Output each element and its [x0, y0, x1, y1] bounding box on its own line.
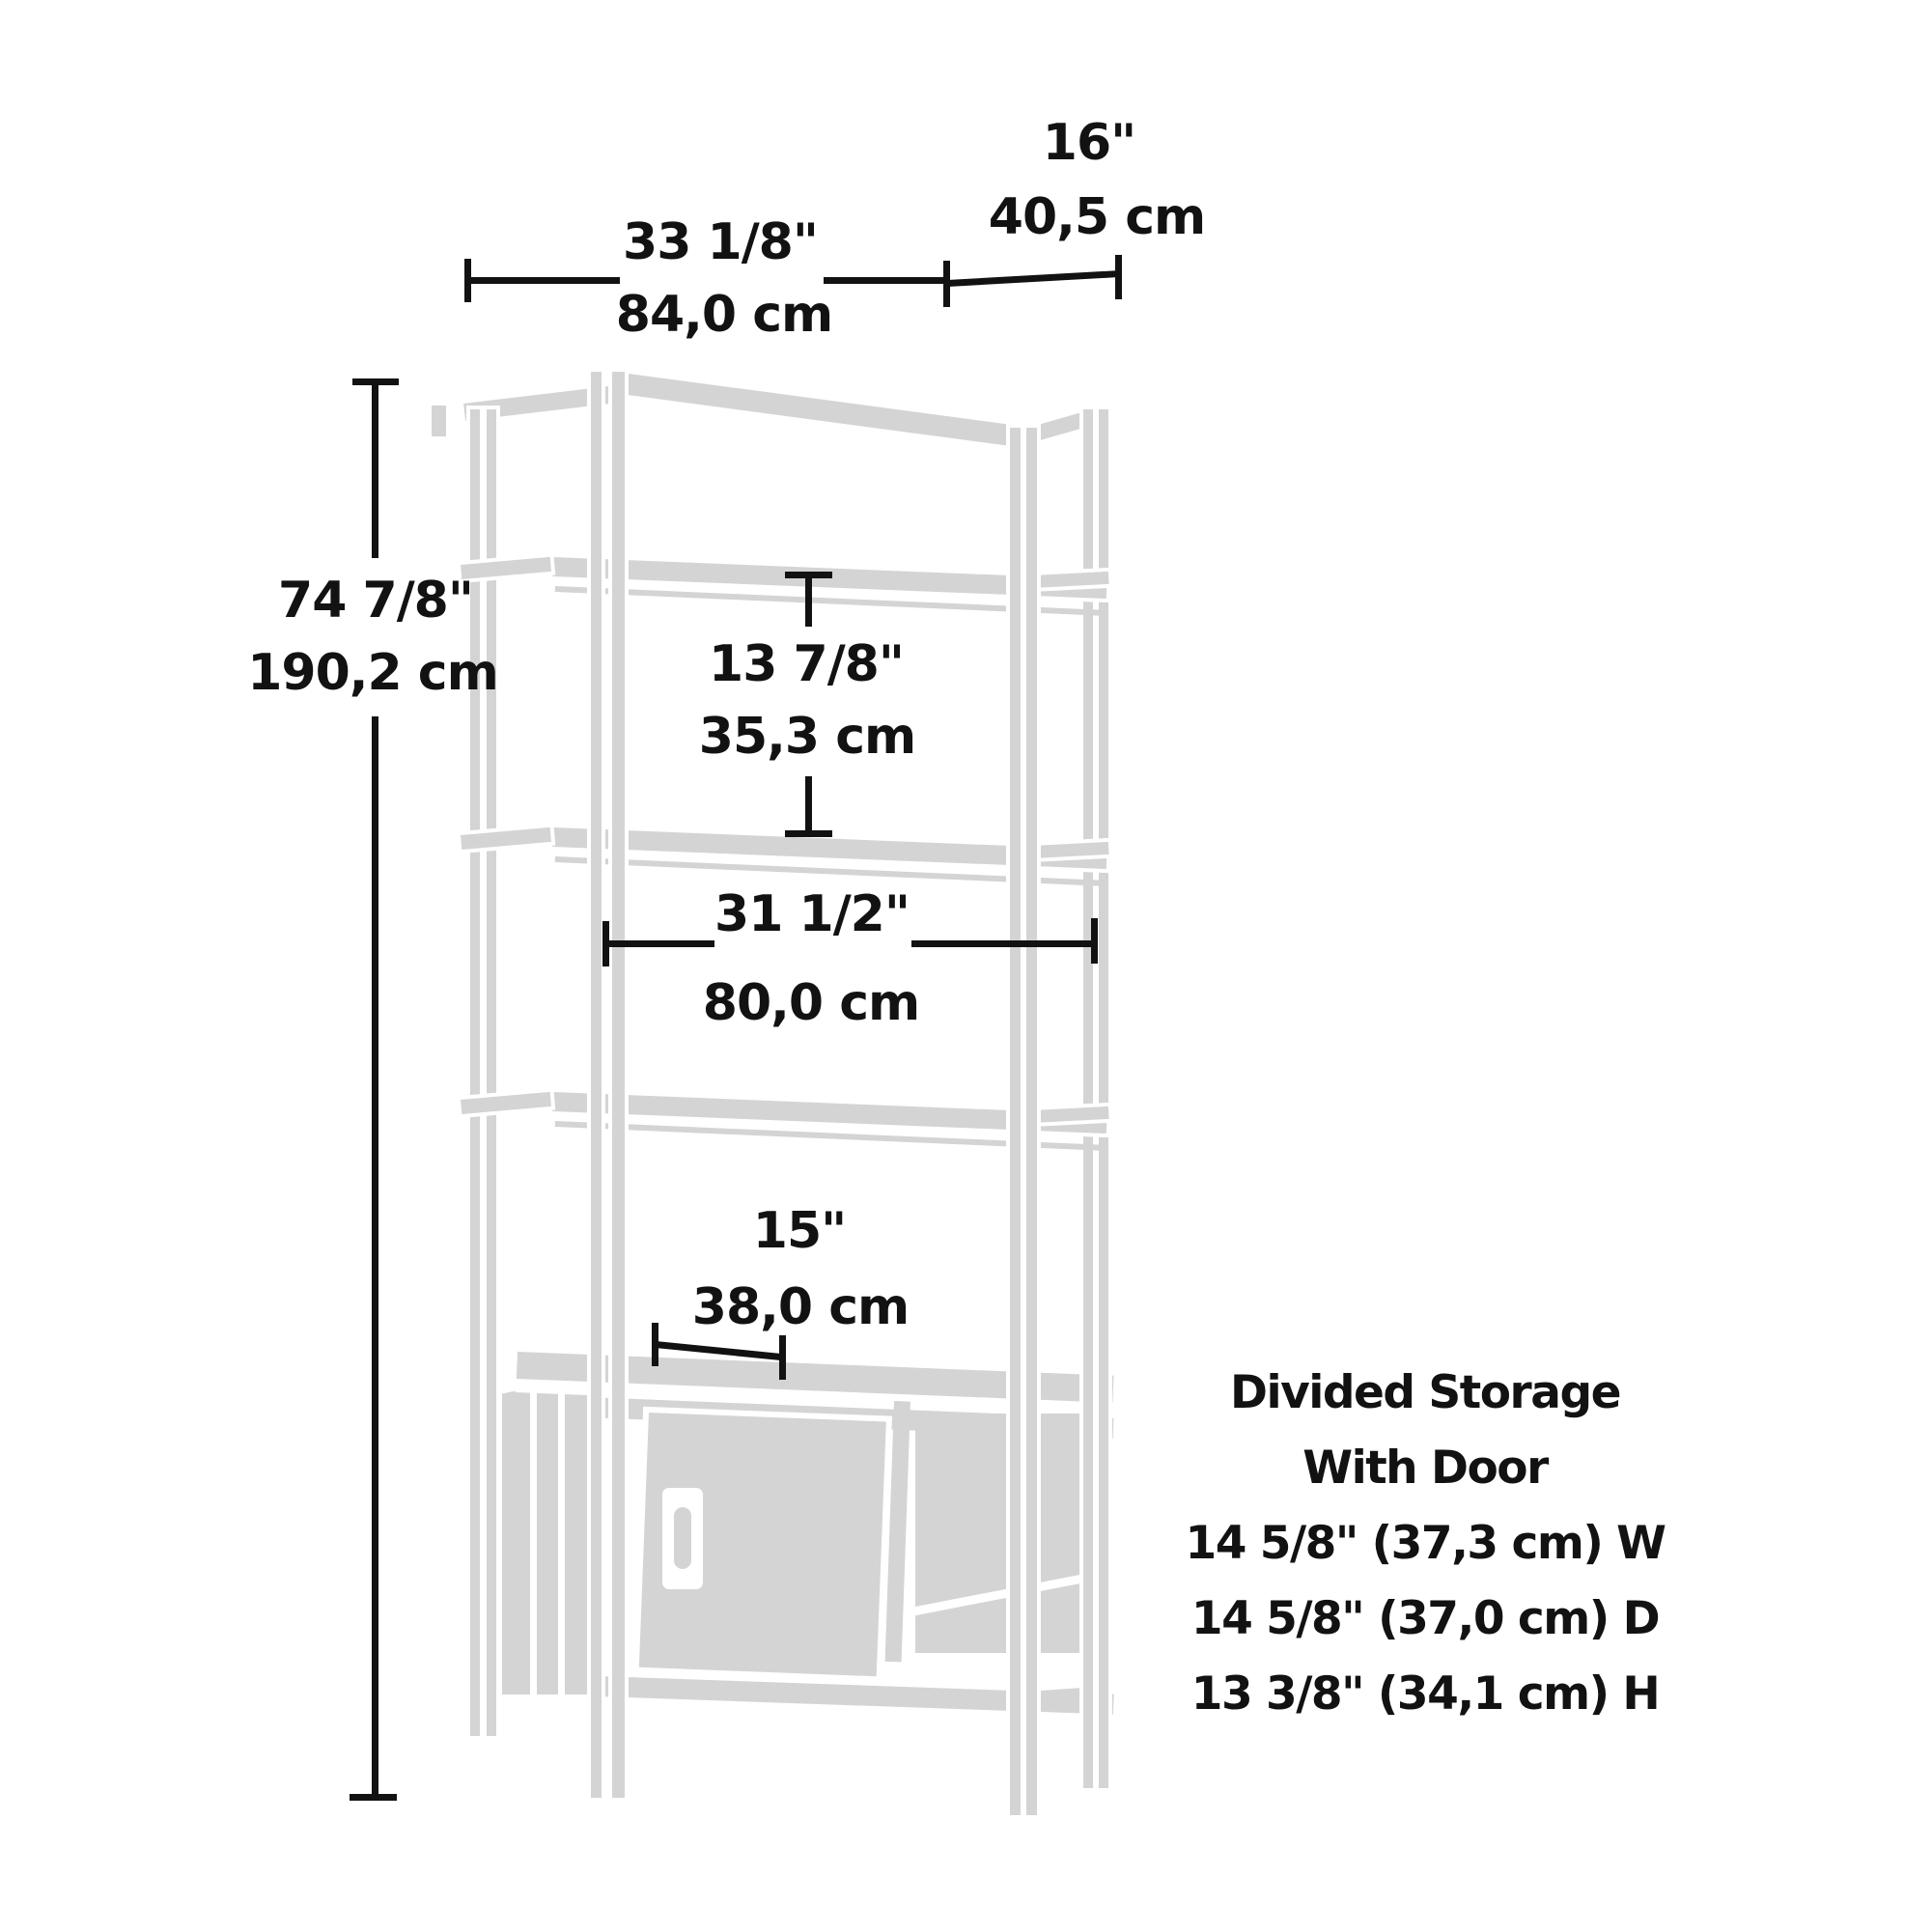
shelfgap-label-inches: 13 7/8" — [709, 639, 904, 689]
depth-dim-right-tick — [1115, 255, 1122, 299]
rear-right-post-inner — [1083, 409, 1093, 1788]
shelfgap-dim-line-upper — [805, 577, 812, 627]
front-left-post-outer — [591, 372, 602, 1798]
front-right-post-outer — [1026, 428, 1037, 1815]
rear-right-post-outer — [1099, 409, 1108, 1788]
depth-label-cm: 40,5 cm — [989, 192, 1205, 242]
front-left-post-inner — [612, 372, 625, 1798]
height-label-cm: 190,2 cm — [247, 648, 498, 698]
shelfgap-label-cm: 35,3 cm — [699, 712, 915, 762]
height-dim-bottom-cap — [350, 1794, 397, 1801]
innerwidth-dim-line-left — [606, 940, 714, 947]
storagewidth-label-cm: 38,0 cm — [692, 1282, 909, 1332]
bookshelf-dimension-diagram: 33 1/8" 84,0 cm 16" 40,5 cm 74 7/8" 190,… — [0, 0, 1932, 1932]
front-right-post-inner — [1010, 428, 1021, 1815]
depth-dim-line — [947, 270, 1119, 287]
height-label-inches: 74 7/8" — [278, 575, 473, 626]
innerwidth-dim-right-tick — [1091, 918, 1098, 964]
storagewidth-label-inches: 15" — [753, 1206, 846, 1256]
door-handle-inset — [674, 1507, 691, 1569]
innerwidth-dim-line-right — [911, 940, 1095, 947]
innerwidth-label-inches: 31 1/2" — [714, 889, 910, 939]
shelfgap-dim-line-lower — [805, 776, 812, 832]
width-label-inches: 33 1/8" — [623, 217, 818, 267]
cabinet-left-stripe-2 — [558, 1387, 565, 1694]
width-dim-line-right — [824, 277, 946, 284]
storage-note-title-line1: Divided Storage — [1185, 1356, 1665, 1431]
storage-note-title-line2: With Door — [1185, 1431, 1665, 1506]
width-label-cm: 84,0 cm — [616, 290, 832, 340]
left-wall-bracket — [432, 406, 446, 436]
depth-label-inches: 16" — [1043, 118, 1135, 168]
cabinet-divider — [885, 1401, 910, 1662]
innerwidth-label-cm: 80,0 cm — [703, 978, 919, 1028]
width-dim-line-left — [467, 277, 620, 284]
shelfgap-dim-bottom-cap — [785, 830, 832, 837]
cabinet-floor-front — [915, 1622, 1085, 1653]
door-handle — [662, 1488, 703, 1589]
height-dim-line-lower — [372, 716, 378, 1797]
storage-note-spec-width: 14 5/8" (37,3 cm) W — [1185, 1506, 1665, 1582]
rear-left-post-inner — [487, 409, 496, 1736]
storage-note-spec-height: 13 3/8" (34,1 cm) H — [1185, 1657, 1665, 1732]
cabinet-left-panel — [502, 1387, 599, 1694]
top-shelf — [611, 372, 1021, 447]
cabinet-left-stripe-1 — [530, 1387, 537, 1694]
storage-note-spec-depth: 14 5/8" (37,0 cm) D — [1185, 1582, 1665, 1657]
storage-note: Divided Storage With Door 14 5/8" (37,3 … — [1185, 1356, 1665, 1732]
storagewidth-dim-right-tick — [779, 1335, 786, 1380]
height-dim-line-upper — [372, 383, 378, 558]
